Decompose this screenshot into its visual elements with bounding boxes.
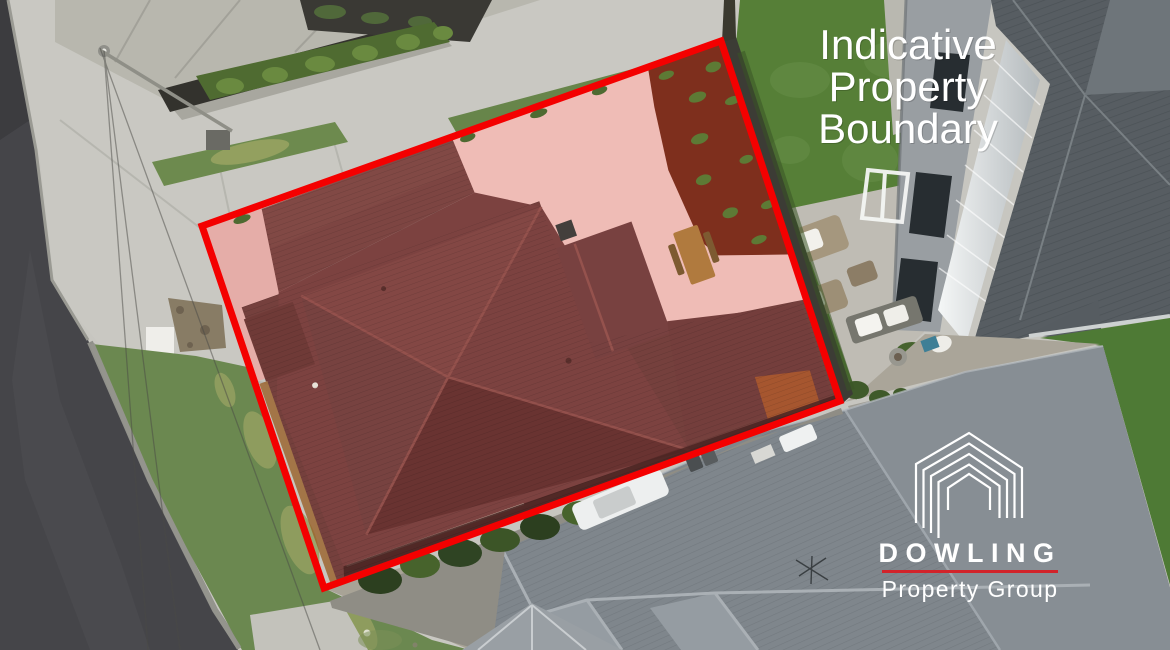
svg-text:Property: Property [829, 63, 988, 110]
svg-text:Indicative: Indicative [819, 21, 996, 68]
svg-text:Boundary: Boundary [818, 105, 998, 152]
svg-text:DOWLING: DOWLING [879, 538, 1062, 568]
svg-text:Property Group: Property Group [882, 576, 1059, 602]
